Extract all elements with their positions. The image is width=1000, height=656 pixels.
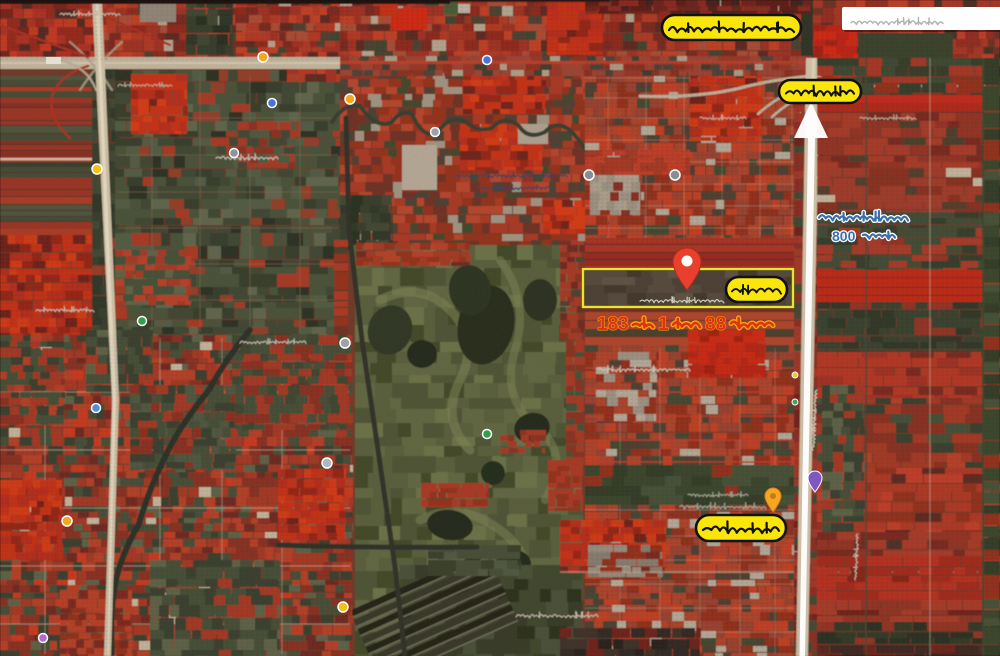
- svg-text:1: 1: [658, 314, 669, 335]
- svg-text:800: 800: [832, 228, 856, 244]
- svg-text:88: 88: [705, 314, 726, 335]
- svg-text:183: 183: [597, 314, 629, 335]
